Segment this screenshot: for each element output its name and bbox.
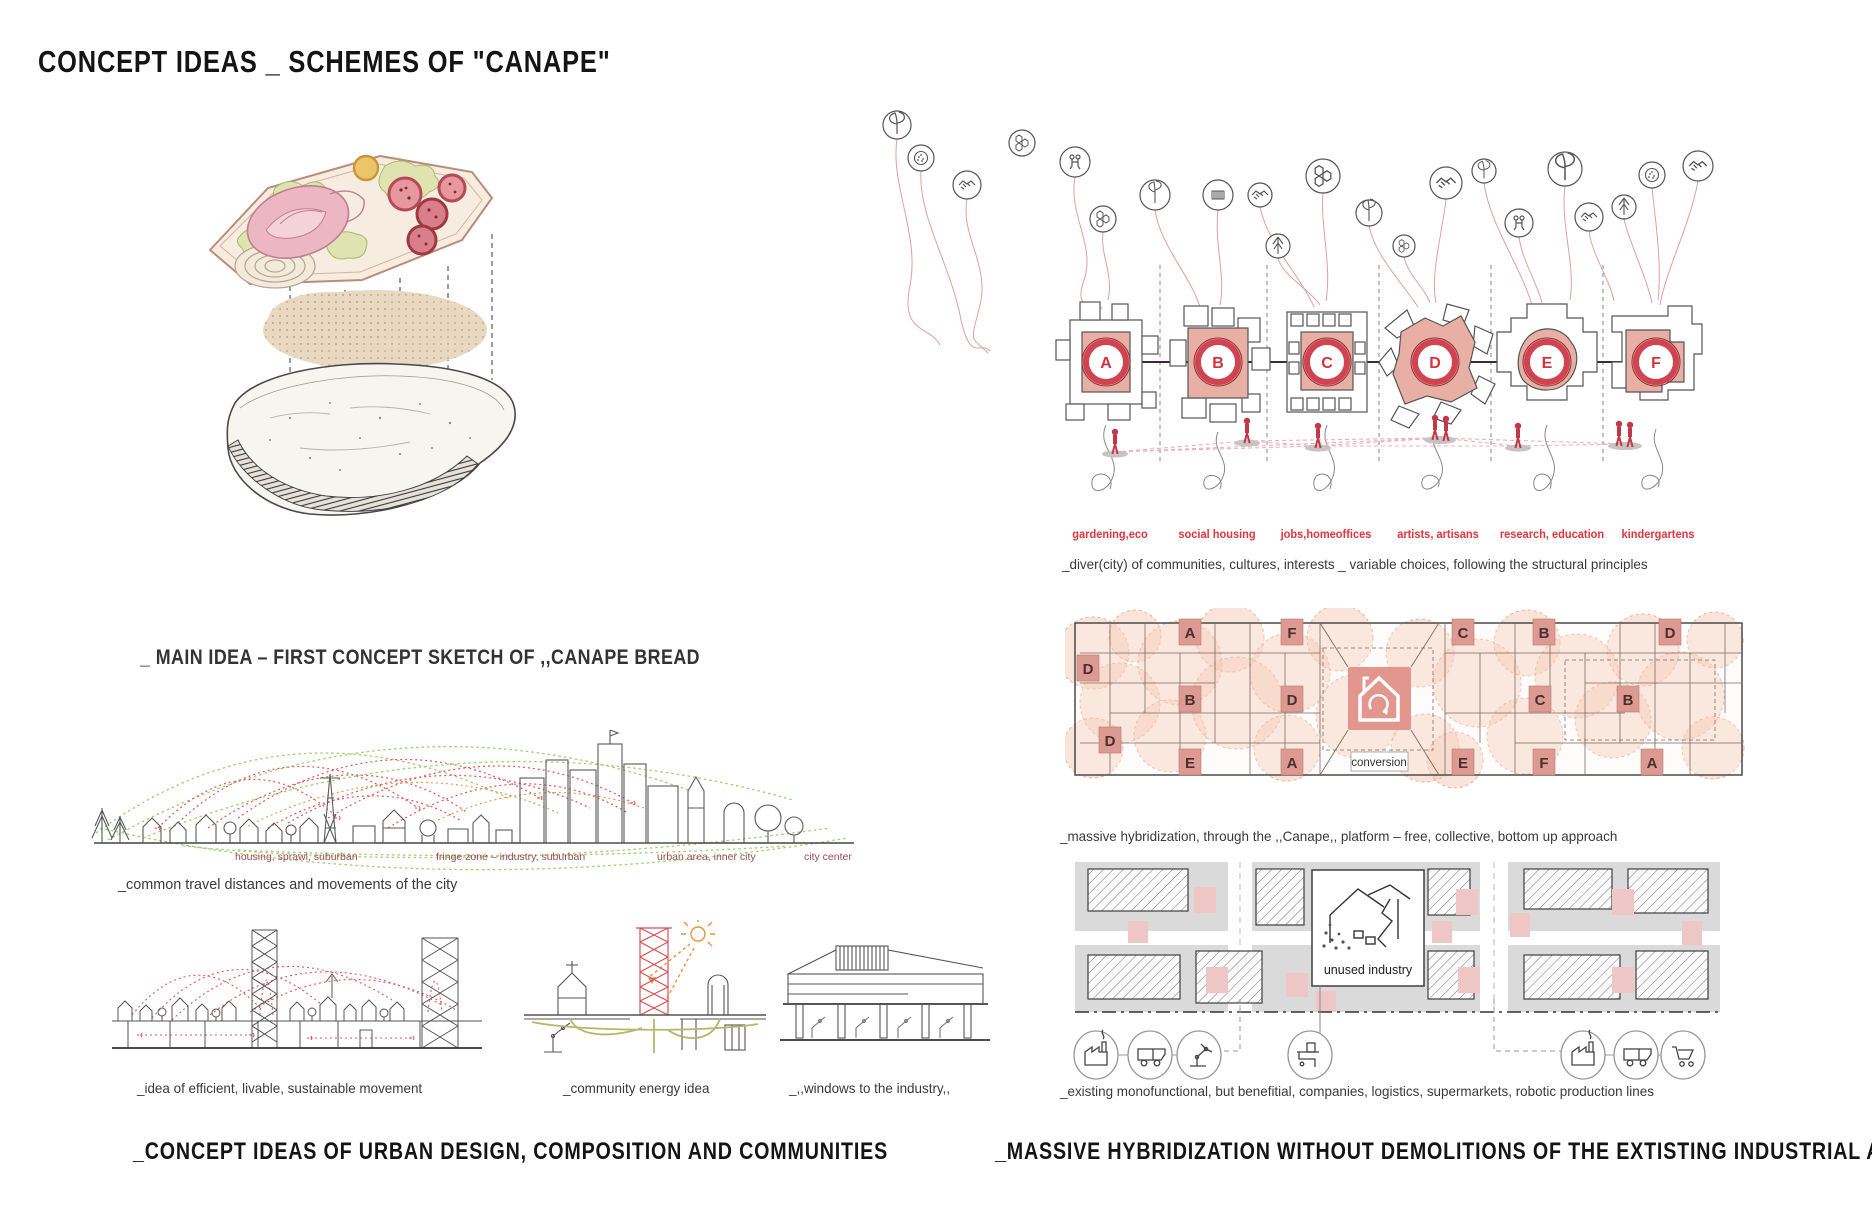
grid-tile: E (1452, 749, 1474, 775)
svg-text:F: F (1287, 625, 1296, 642)
hanging-loops (1092, 425, 1663, 491)
zone-label-urban: urban area, inner city (657, 851, 756, 863)
person-icon (1515, 423, 1521, 448)
main-idea-caption: _ MAIN IDEA – FIRST CONCEPT SKETCH OF ,,… (140, 646, 799, 670)
canape-sketch (180, 118, 560, 538)
energy-conduits (532, 1019, 758, 1053)
industry-caption: _existing monofunctional, but benefitial… (1060, 1083, 1679, 1101)
grid-tile: D (1659, 619, 1681, 645)
svg-text:D: D (1105, 733, 1116, 750)
svg-text:D: D (1429, 355, 1441, 372)
grid-tile: B (1533, 619, 1555, 645)
svg-text:C: C (1458, 625, 1469, 642)
leaf-icon (1140, 180, 1170, 210)
sprout-icon (1548, 152, 1582, 186)
svg-text:unused industry: unused industry (1324, 963, 1413, 977)
scheme-ring-f: F (1632, 338, 1680, 386)
zone-label-center: city center (804, 851, 852, 863)
right-section-title: _MASSIVE HYBRIDIZATION WITHOUT DEMOLITIO… (995, 1138, 1872, 1166)
scheme-ring-a: A (1082, 338, 1130, 386)
svg-text:C: C (1321, 355, 1333, 372)
handshake-icon (1248, 183, 1272, 207)
grid-tile: A (1281, 749, 1303, 775)
molecule-icon (1090, 206, 1116, 232)
grid-tile: D (1281, 686, 1303, 712)
hybridization-grid: A F C B D D B D C B D E A E F A conv (1065, 608, 1755, 793)
sun-icon (648, 920, 715, 1000)
unused-industry-box: unused industry (1312, 870, 1424, 986)
grid-tile: F (1281, 619, 1303, 645)
person-icon (1112, 429, 1118, 454)
movement-arcs (132, 966, 456, 1040)
scheme-ring-b: B (1194, 338, 1242, 386)
toppings-board (210, 156, 492, 288)
grid-tile: F (1533, 749, 1555, 775)
grid-tile: A (1641, 749, 1663, 775)
energy-tower (636, 928, 672, 1015)
grid-tile: A (1179, 619, 1201, 645)
concept-board: CONCEPT IDEAS _ SCHEMES OF "CANAPE" (0, 0, 1872, 1208)
balloon-icons (883, 111, 1713, 258)
cart-icon (1661, 1031, 1705, 1079)
energy-caption: _community energy idea (563, 1080, 716, 1098)
industrial-plan: unused industry (1068, 855, 1728, 1090)
molecule-icon (1009, 130, 1035, 156)
hybridization-caption: _massive hybridization, through the ,,Ca… (1060, 828, 1641, 846)
truck-icon (1128, 1031, 1172, 1079)
robot-arm-icon (1177, 1031, 1221, 1079)
svg-text:F: F (1539, 755, 1548, 772)
handshake-icon (953, 171, 981, 199)
community-label-kindergartens: kindergartens (1621, 527, 1694, 541)
community-label-jobs: jobs,homeoffices (1281, 527, 1372, 541)
grid-tile: D (1099, 727, 1121, 753)
movement-caption: _idea of efficient, livable, sustainable… (137, 1080, 434, 1098)
svg-text:A: A (1647, 755, 1658, 772)
tree-icon (1266, 234, 1290, 258)
grid-tile: C (1452, 619, 1474, 645)
svg-text:B: B (1623, 692, 1634, 709)
grid-tile: D (1077, 655, 1099, 681)
windows-caption: _,,windows to the industry,, (789, 1080, 957, 1098)
svg-text:A: A (1100, 355, 1112, 372)
community-label-gardening: gardening,eco (1072, 527, 1147, 541)
energy-sketch (520, 920, 770, 1058)
skyline (92, 730, 803, 843)
truck-icon (1614, 1031, 1658, 1079)
zone-label-housing: housing, sprawl, suburban (235, 851, 358, 863)
grid-tile: C (1529, 686, 1551, 712)
svg-text:A: A (1185, 625, 1196, 642)
page-title: CONCEPT IDEAS _ SCHEMES OF "CANAPE" (38, 44, 736, 80)
zone-label-fringe: fringe zone – industry, suburban (436, 851, 585, 863)
svg-text:E: E (1185, 755, 1195, 772)
schemes-diagram: A B C D E (870, 95, 1760, 525)
svg-text:A: A (1287, 755, 1298, 772)
travel-caption: _common travel distances and movements o… (118, 876, 472, 894)
grid-tile: E (1179, 749, 1201, 775)
community-label-artists: artists, artisans (1397, 527, 1479, 541)
molecule-icon (1393, 235, 1415, 257)
person-icon (1616, 421, 1622, 446)
leaf-icon (1356, 199, 1382, 226)
red-travel-arcs (156, 759, 635, 830)
grid-tile: B (1179, 686, 1201, 712)
people-icon (1505, 209, 1533, 237)
robot-arms (812, 1017, 953, 1038)
svg-text:E: E (1458, 755, 1468, 772)
sprout-icon (1472, 159, 1496, 183)
svg-text:E: E (1542, 355, 1553, 372)
molecule-icon (1306, 159, 1340, 193)
cookie-icon (1639, 162, 1665, 188)
svg-text:B: B (1212, 355, 1224, 372)
pipe-icon (1288, 1031, 1332, 1079)
conversion-house-icon (1348, 667, 1411, 730)
community-label-research: research, education (1500, 527, 1604, 541)
person-icon (1315, 423, 1321, 448)
svg-text:conversion: conversion (1351, 757, 1407, 769)
industry-windows-sketch (778, 938, 993, 1050)
tree-icon (1612, 195, 1636, 219)
people-icon (1060, 147, 1090, 177)
person-icon (1244, 418, 1250, 443)
scheme-ring-d: D (1411, 338, 1459, 386)
community-label-social-housing: social housing (1178, 527, 1255, 541)
city-section-sketch: housing, sprawl, suburban fringe zone – … (88, 678, 868, 873)
svg-text:F: F (1651, 355, 1661, 372)
left-section-title: _CONCEPT IDEAS OF URBAN DESIGN, COMPOSIT… (133, 1138, 1054, 1166)
svg-text:B: B (1539, 625, 1550, 642)
movement-sketch (110, 920, 485, 1058)
bread-slice (227, 364, 515, 515)
music-icon (1203, 180, 1233, 210)
svg-text:D: D (1665, 625, 1676, 642)
scheme-ring-c: C (1303, 338, 1351, 386)
sprout-icon (883, 111, 911, 139)
movement-structures (112, 930, 482, 1048)
factory-icon (1561, 1030, 1605, 1079)
scheme-ring-e: E (1523, 338, 1571, 386)
svg-text:C: C (1535, 692, 1546, 709)
community-people (1102, 415, 1642, 458)
handshake-icon (1575, 203, 1603, 231)
grid-tile: B (1617, 686, 1639, 712)
svg-text:D: D (1083, 661, 1094, 678)
svg-text:D: D (1287, 692, 1298, 709)
industry-building (783, 946, 988, 1038)
factory-icon (1074, 1030, 1118, 1079)
cookie-icon (908, 145, 934, 171)
diversity-caption: _diver(city) of communities, cultures, i… (1062, 556, 1672, 574)
conversion-label: conversion (1351, 752, 1408, 771)
svg-text:B: B (1185, 692, 1196, 709)
handshake-icon (1683, 151, 1713, 181)
spread-layer (263, 290, 487, 370)
page-title-text: CONCEPT IDEAS _ SCHEMES OF "CANAPE" (38, 44, 611, 80)
handshake-icon (1430, 167, 1462, 199)
